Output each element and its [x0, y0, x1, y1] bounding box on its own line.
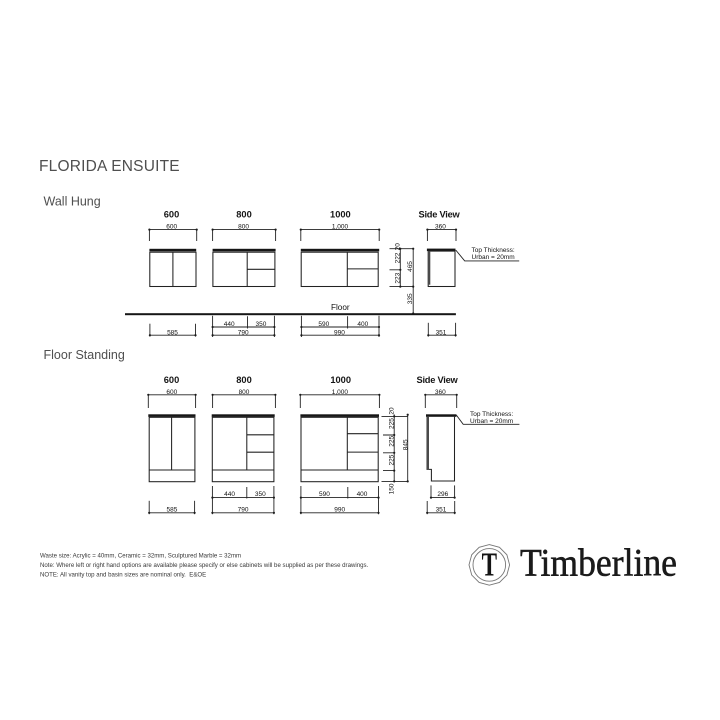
- svg-text:585: 585: [167, 329, 178, 336]
- svg-text:400: 400: [357, 491, 368, 498]
- svg-text:600: 600: [164, 375, 180, 385]
- svg-text:845: 845: [402, 439, 409, 450]
- svg-text:1000: 1000: [330, 375, 351, 385]
- svg-text:Waste size: Acrylic = 40mm, Ce: Waste size: Acrylic = 40mm, Ceramic = 32…: [40, 552, 241, 559]
- svg-text:Side View: Side View: [419, 210, 461, 220]
- svg-text:400: 400: [357, 321, 368, 328]
- svg-text:FLORIDA ENSUITE: FLORIDA ENSUITE: [39, 158, 180, 175]
- svg-text:335: 335: [407, 293, 414, 304]
- svg-text:150: 150: [388, 483, 395, 494]
- svg-text:225: 225: [388, 435, 395, 446]
- svg-text:223: 223: [394, 272, 401, 283]
- svg-text:440: 440: [224, 321, 235, 328]
- svg-text:Urban = 20mm: Urban = 20mm: [472, 254, 515, 261]
- svg-text:800: 800: [236, 375, 252, 385]
- svg-text:790: 790: [238, 506, 249, 513]
- svg-text:351: 351: [436, 329, 447, 336]
- svg-text:NOTE: All vanity top and basin: NOTE: All vanity top and basin sizes are…: [40, 571, 206, 578]
- svg-text:1000: 1000: [330, 210, 351, 220]
- svg-text:990: 990: [334, 506, 345, 513]
- svg-text:20: 20: [394, 243, 401, 251]
- svg-text:225: 225: [388, 454, 395, 465]
- svg-text:350: 350: [255, 491, 266, 498]
- svg-text:Urban = 20mm: Urban = 20mm: [470, 418, 513, 425]
- svg-text:600: 600: [164, 210, 180, 220]
- svg-text:350: 350: [255, 321, 266, 328]
- svg-text:Floor: Floor: [331, 303, 350, 312]
- svg-text:590: 590: [319, 491, 330, 498]
- svg-text:Top Thickness:: Top Thickness:: [470, 411, 513, 418]
- svg-text:Timberline: Timberline: [520, 542, 677, 585]
- svg-text:Side View: Side View: [417, 375, 459, 385]
- svg-text:990: 990: [334, 329, 345, 336]
- svg-text:20: 20: [388, 407, 395, 415]
- svg-text:Wall Hung: Wall Hung: [44, 194, 101, 208]
- svg-text:296: 296: [437, 491, 448, 498]
- svg-text:440: 440: [224, 491, 235, 498]
- svg-text:465: 465: [407, 261, 414, 272]
- svg-text:T: T: [482, 546, 497, 583]
- svg-text:Top Thickness:: Top Thickness:: [472, 247, 515, 254]
- svg-text:590: 590: [318, 321, 329, 328]
- svg-text:800: 800: [236, 210, 252, 220]
- svg-text:585: 585: [166, 506, 177, 513]
- svg-text:225: 225: [388, 418, 395, 429]
- svg-text:790: 790: [238, 329, 249, 336]
- svg-text:351: 351: [436, 506, 447, 513]
- svg-text:222: 222: [394, 252, 401, 263]
- svg-text:Floor Standing: Floor Standing: [44, 348, 125, 362]
- svg-text:Note: Where left or right hand: Note: Where left or right hand options a…: [40, 562, 369, 569]
